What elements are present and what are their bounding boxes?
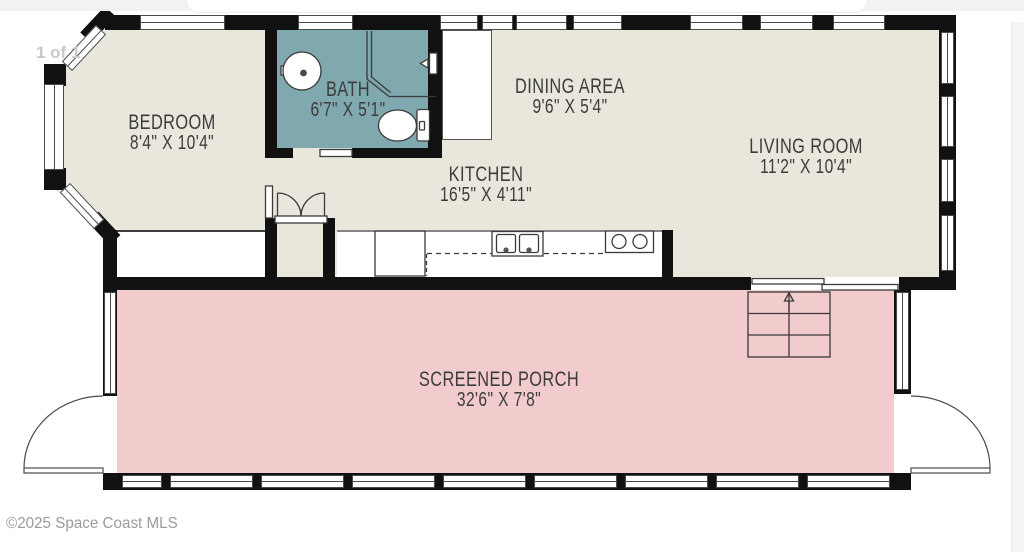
living-room-label: LIVING ROOM 11'2" X 10'4"	[749, 136, 863, 178]
staircase	[748, 292, 830, 357]
room-dimensions: 8'4" X 10'4"	[128, 133, 215, 154]
living-room-sliding-door	[752, 279, 898, 291]
kitchen-counter-details	[337, 231, 662, 276]
room-dimensions: 11'2" X 10'4"	[749, 157, 863, 178]
room-name: DINING AREA	[515, 76, 625, 97]
bath-label: BATH 6'7" X 5'1"	[310, 79, 385, 121]
dining-label: DINING AREA 9'6" X 5'4"	[515, 76, 625, 118]
toilet	[379, 110, 430, 142]
room-dimensions: 9'6" X 5'4"	[515, 97, 625, 118]
right-edge-panel	[1011, 22, 1024, 552]
fixtures-layer	[0, 0, 1024, 552]
closet-double-doors	[275, 193, 327, 223]
floor-plan-viewer: BEDROOM 8'4" X 10'4" BATH 6'7" X 5'1" DI…	[0, 0, 1024, 552]
bath-door	[320, 150, 352, 157]
bedroom-pocket-door	[266, 186, 273, 218]
porch-left-door	[24, 396, 103, 473]
room-dimensions: 16'5" X 4'11"	[440, 185, 532, 206]
room-name: SCREENED PORCH	[419, 369, 579, 390]
top-rounded-overlay	[186, 0, 868, 13]
room-name: BATH	[310, 79, 385, 100]
bedroom-label: BEDROOM 8'4" X 10'4"	[128, 112, 215, 154]
room-dimensions: 6'7" X 5'1"	[310, 100, 385, 121]
porch-right-door	[911, 396, 990, 473]
screened-porch-label: SCREENED PORCH 32'6" X 7'8"	[419, 369, 579, 411]
room-name: KITCHEN	[440, 164, 532, 185]
kitchen-label: KITCHEN 16'5" X 4'11"	[440, 164, 532, 206]
room-dimensions: 32'6" X 7'8"	[419, 390, 579, 411]
photo-counter: 1 of 1	[36, 43, 80, 63]
room-name: LIVING ROOM	[749, 136, 863, 157]
copyright-text: ©2025 Space Coast MLS	[6, 515, 178, 533]
room-name: BEDROOM	[128, 112, 215, 133]
